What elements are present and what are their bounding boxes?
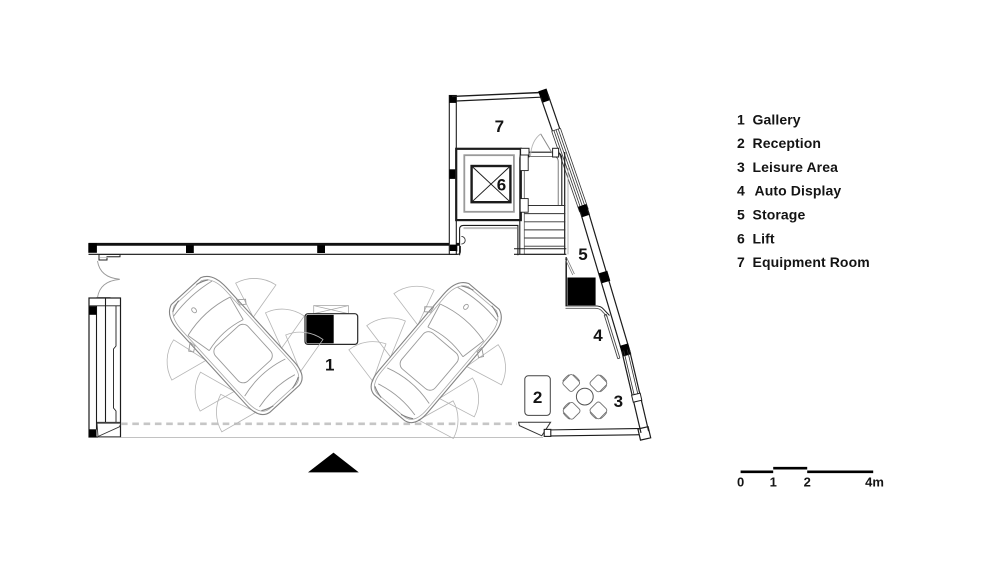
svg-text:7: 7 <box>495 117 504 136</box>
svg-text:2: 2 <box>737 135 745 151</box>
svg-text:2: 2 <box>804 475 811 490</box>
svg-text:3: 3 <box>737 159 745 175</box>
svg-text:0: 0 <box>737 474 744 489</box>
svg-text:1: 1 <box>737 111 745 127</box>
svg-text:Auto Display: Auto Display <box>755 183 842 199</box>
svg-text:3: 3 <box>614 392 623 411</box>
svg-text:5: 5 <box>578 245 587 264</box>
svg-text:4m: 4m <box>865 475 884 490</box>
svg-text:Reception: Reception <box>753 135 822 151</box>
svg-text:Gallery: Gallery <box>753 111 801 127</box>
svg-text:2: 2 <box>533 388 542 407</box>
svg-text:4: 4 <box>593 326 603 345</box>
svg-text:4: 4 <box>737 183 745 199</box>
svg-text:7: 7 <box>737 254 745 270</box>
svg-text:1: 1 <box>325 356 334 375</box>
svg-text:1: 1 <box>770 475 777 490</box>
svg-text:Lift: Lift <box>753 230 775 246</box>
svg-text:6: 6 <box>737 230 745 246</box>
svg-text:6: 6 <box>497 176 506 195</box>
svg-text:Storage: Storage <box>753 207 806 223</box>
svg-text:Equipment Room: Equipment Room <box>753 254 870 270</box>
svg-text:5: 5 <box>737 207 745 223</box>
svg-text:Leisure Area: Leisure Area <box>753 159 839 175</box>
